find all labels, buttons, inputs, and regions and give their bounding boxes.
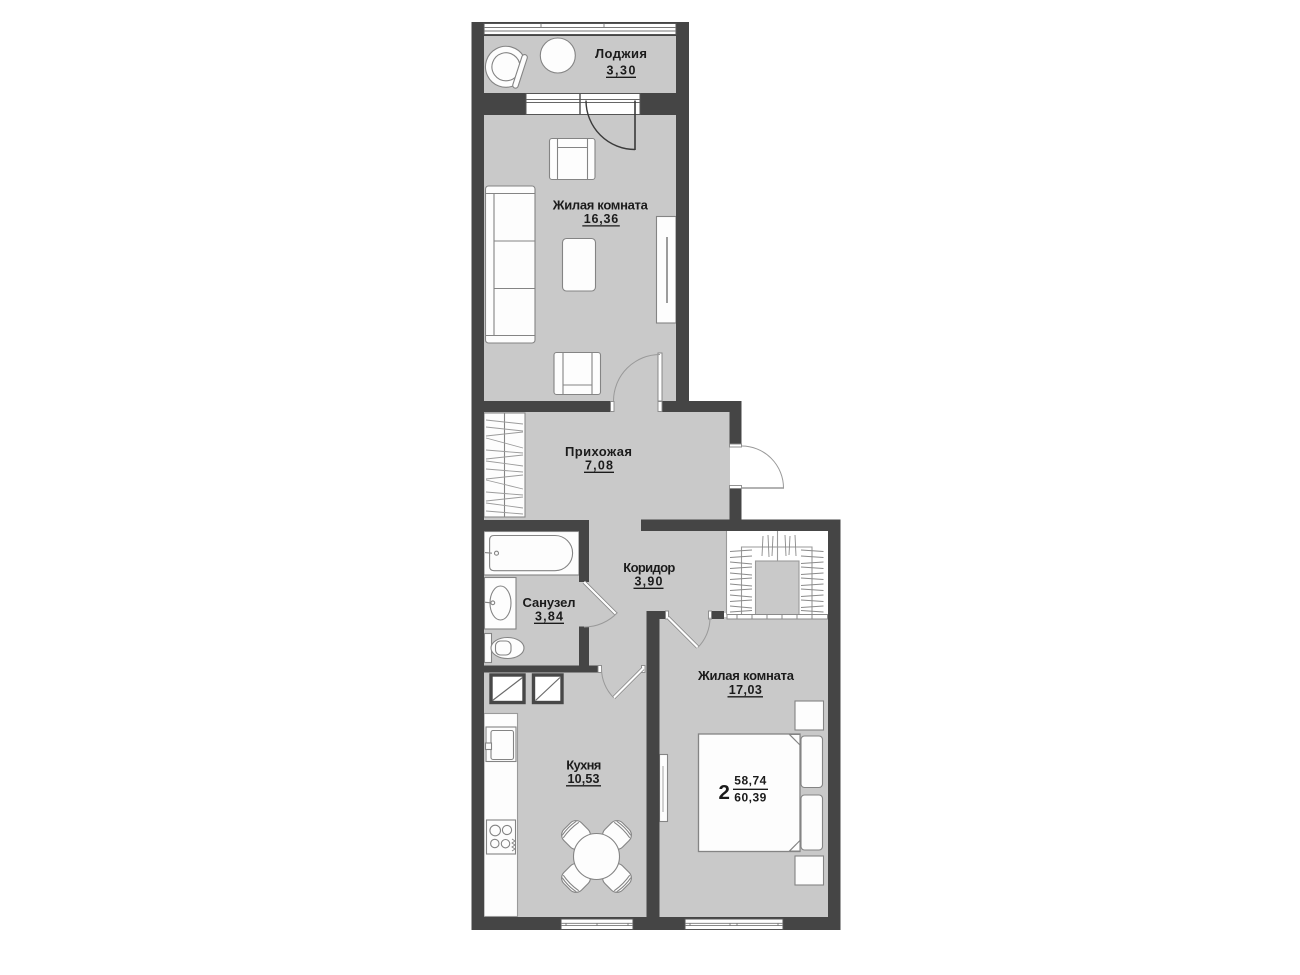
svg-text:Коридор: Коридор	[623, 560, 675, 575]
svg-text:2: 2	[719, 781, 730, 804]
svg-text:Кухня: Кухня	[566, 757, 601, 772]
svg-text:Прихожая: Прихожая	[565, 444, 632, 459]
svg-text:3,30: 3,30	[607, 64, 636, 78]
svg-text:58,74: 58,74	[734, 774, 766, 788]
svg-text:Жилая комната: Жилая комната	[552, 198, 649, 213]
svg-text:Санузел: Санузел	[523, 595, 576, 610]
svg-text:16,36: 16,36	[584, 212, 619, 226]
svg-text:7,08: 7,08	[585, 459, 613, 473]
svg-text:Жилая комната: Жилая комната	[697, 668, 795, 683]
svg-text:3,90: 3,90	[635, 575, 663, 589]
svg-text:Лоджия: Лоджия	[595, 46, 647, 61]
svg-text:10,53: 10,53	[568, 772, 600, 786]
svg-text:60,39: 60,39	[734, 791, 766, 805]
svg-text:17,03: 17,03	[729, 683, 762, 697]
svg-text:3,84: 3,84	[535, 610, 563, 624]
